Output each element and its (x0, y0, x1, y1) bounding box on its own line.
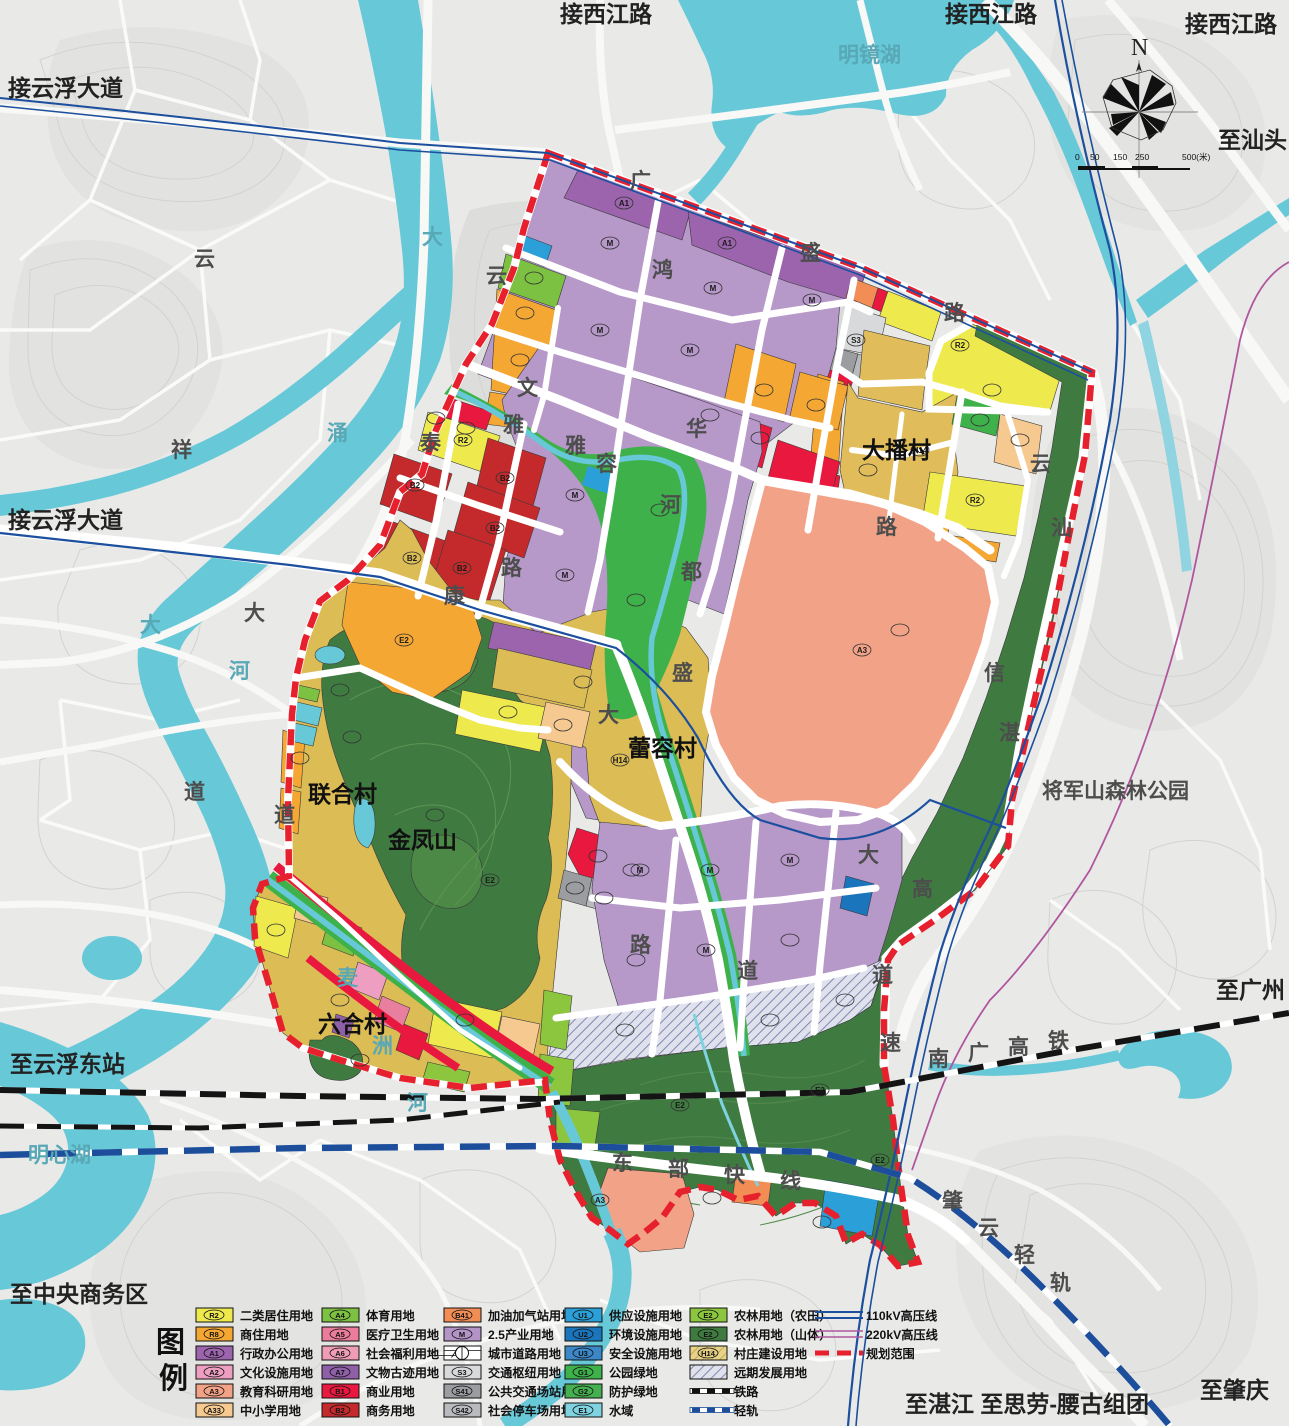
svg-text:南: 南 (928, 1047, 949, 1071)
svg-text:E2: E2 (815, 1086, 825, 1095)
svg-text:路: 路 (630, 933, 652, 957)
svg-text:明镜湖: 明镜湖 (838, 43, 901, 67)
svg-text:至广州: 至广州 (1216, 977, 1285, 1003)
svg-text:供应设施用地: 供应设施用地 (608, 1308, 683, 1323)
svg-text:涌: 涌 (327, 422, 348, 445)
svg-text:盛: 盛 (672, 661, 693, 685)
svg-text:例: 例 (159, 1361, 188, 1395)
svg-text:汕: 汕 (1051, 517, 1072, 540)
svg-text:至汕头: 至汕头 (1218, 127, 1287, 153)
svg-text:E2: E2 (703, 1311, 712, 1320)
svg-text:A6: A6 (335, 1349, 345, 1358)
svg-text:容: 容 (596, 452, 617, 476)
svg-text:B2: B2 (410, 481, 421, 490)
svg-text:大: 大 (858, 844, 879, 867)
svg-text:道: 道 (737, 959, 758, 983)
svg-text:商住用地: 商住用地 (240, 1327, 290, 1342)
svg-text:接云浮大道: 接云浮大道 (8, 507, 123, 533)
svg-text:A3: A3 (209, 1387, 219, 1396)
svg-text:M: M (607, 239, 614, 248)
svg-text:社会停车场用地: 社会停车场用地 (487, 1403, 574, 1418)
svg-text:快: 快 (724, 1164, 746, 1187)
svg-text:E2: E2 (875, 1156, 885, 1165)
svg-text:道: 道 (274, 803, 295, 827)
svg-text:接西江路: 接西江路 (560, 1, 653, 27)
svg-text:B2: B2 (457, 564, 468, 573)
svg-text:广: 广 (630, 169, 651, 193)
svg-text:河: 河 (660, 494, 681, 517)
svg-text:150: 150 (1113, 152, 1127, 162)
svg-text:接西江路: 接西江路 (1185, 11, 1278, 37)
svg-text:蕾容村: 蕾容村 (628, 735, 697, 761)
svg-text:规划范围: 规划范围 (866, 1346, 915, 1361)
svg-text:大: 大 (598, 704, 619, 727)
svg-text:E2: E2 (675, 1101, 685, 1110)
svg-text:图: 图 (156, 1327, 185, 1359)
svg-text:至云浮东站: 至云浮东站 (10, 1051, 125, 1077)
svg-text:鸿: 鸿 (652, 258, 673, 282)
svg-text:M: M (809, 296, 816, 305)
svg-text:接西江路: 接西江路 (945, 1, 1038, 27)
svg-text:50: 50 (1090, 152, 1100, 162)
svg-text:E2: E2 (703, 1330, 712, 1339)
svg-text:广: 广 (968, 1041, 989, 1065)
svg-text:H14: H14 (613, 756, 628, 765)
svg-text:云: 云 (194, 248, 215, 271)
svg-text:路: 路 (501, 556, 523, 580)
svg-text:M: M (710, 284, 717, 293)
svg-text:A1: A1 (722, 239, 733, 248)
svg-text:信: 信 (984, 661, 1005, 685)
svg-text:A1: A1 (209, 1349, 219, 1358)
svg-text:肇: 肇 (942, 1189, 964, 1213)
svg-text:康: 康 (444, 584, 466, 608)
svg-text:路: 路 (876, 515, 898, 539)
svg-text:中小学用地: 中小学用地 (240, 1403, 302, 1418)
svg-text:B2: B2 (407, 554, 418, 563)
svg-text:二类居住用地: 二类居住用地 (240, 1308, 314, 1323)
svg-text:农林用地（农田）: 农林用地（农田） (733, 1308, 832, 1323)
svg-text:铁: 铁 (1048, 1029, 1069, 1053)
svg-text:A5: A5 (335, 1330, 345, 1339)
svg-text:医疗卫生用地: 医疗卫生用地 (366, 1327, 440, 1342)
svg-text:至湛江 至思劳-腰古组团: 至湛江 至思劳-腰古组团 (905, 1391, 1149, 1417)
svg-text:A1: A1 (619, 199, 630, 208)
svg-text:六合村: 六合村 (318, 1011, 387, 1037)
svg-text:文: 文 (517, 376, 539, 400)
svg-text:0: 0 (1075, 152, 1080, 162)
svg-text:云: 云 (486, 265, 507, 288)
svg-text:H14: H14 (701, 1349, 716, 1358)
svg-text:行政办公用地: 行政办公用地 (239, 1346, 314, 1361)
svg-text:E2: E2 (399, 636, 409, 645)
svg-text:大: 大 (140, 614, 161, 637)
svg-text:文物古迹用地: 文物古迹用地 (366, 1365, 440, 1380)
svg-text:N: N (1131, 35, 1148, 61)
svg-text:线: 线 (780, 1169, 801, 1193)
svg-text:A3: A3 (595, 1196, 606, 1205)
svg-text:R2: R2 (209, 1311, 219, 1320)
svg-text:城市道路用地: 城市道路用地 (488, 1346, 562, 1361)
svg-text:U3: U3 (578, 1349, 588, 1358)
svg-text:S41: S41 (455, 1387, 468, 1396)
svg-text:金凤山: 金凤山 (387, 827, 457, 853)
svg-text:华: 华 (686, 417, 707, 441)
svg-text:B2: B2 (500, 474, 511, 483)
svg-text:2.5产业用地: 2.5产业用地 (488, 1327, 555, 1342)
svg-text:泰: 泰 (419, 432, 442, 455)
svg-text:S3: S3 (457, 1368, 466, 1377)
svg-text:麦: 麦 (337, 966, 359, 990)
svg-text:接云浮大道: 接云浮大道 (8, 75, 123, 101)
svg-text:雅: 雅 (503, 413, 524, 437)
svg-text:防护绿地: 防护绿地 (609, 1384, 659, 1399)
svg-text:B41: B41 (455, 1311, 469, 1320)
svg-text:110kV高压线: 110kV高压线 (866, 1308, 938, 1323)
svg-text:500(米): 500(米) (1182, 152, 1211, 162)
svg-text:A4: A4 (335, 1311, 345, 1320)
svg-text:M: M (459, 1330, 465, 1339)
svg-text:至中央商务区: 至中央商务区 (10, 1281, 148, 1307)
svg-text:祥: 祥 (171, 438, 192, 462)
svg-text:教育科研用地: 教育科研用地 (239, 1384, 314, 1399)
svg-text:联合村: 联合村 (308, 781, 377, 807)
svg-text:大: 大 (422, 226, 443, 249)
svg-text:G2: G2 (578, 1387, 588, 1396)
svg-text:M: M (703, 946, 710, 955)
svg-text:道: 道 (872, 963, 893, 987)
svg-text:雅: 雅 (565, 434, 586, 458)
svg-text:S3: S3 (851, 336, 861, 345)
svg-text:至肇庆: 至肇庆 (1200, 1377, 1269, 1403)
svg-text:E1: E1 (578, 1406, 587, 1415)
svg-text:加油加气站用地: 加油加气站用地 (487, 1308, 574, 1323)
svg-text:商务用地: 商务用地 (366, 1403, 416, 1418)
svg-text:R8: R8 (209, 1330, 219, 1339)
svg-text:220kV高压线: 220kV高压线 (866, 1327, 939, 1342)
svg-text:大播村: 大播村 (862, 437, 931, 463)
svg-text:云: 云 (1030, 453, 1051, 476)
svg-text:R2: R2 (970, 496, 981, 505)
svg-text:水域: 水域 (609, 1403, 633, 1418)
svg-text:湛: 湛 (999, 722, 1020, 745)
svg-text:洲: 洲 (372, 1035, 393, 1058)
svg-text:M: M (637, 866, 644, 875)
svg-text:大: 大 (244, 602, 265, 625)
svg-text:B2: B2 (490, 524, 501, 533)
svg-text:A3: A3 (857, 646, 868, 655)
svg-text:农林用地（山体）: 农林用地（山体） (733, 1327, 832, 1342)
svg-text:路: 路 (944, 301, 966, 325)
svg-text:东: 东 (612, 1151, 633, 1175)
svg-text:铁路: 铁路 (734, 1384, 759, 1399)
svg-text:安全设施用地: 安全设施用地 (609, 1346, 683, 1361)
svg-text:速: 速 (880, 1032, 901, 1055)
svg-text:U2: U2 (578, 1330, 588, 1339)
svg-text:文化设施用地: 文化设施用地 (240, 1365, 314, 1380)
svg-text:S42: S42 (455, 1406, 468, 1415)
svg-text:M: M (562, 571, 569, 580)
svg-text:商业用地: 商业用地 (366, 1384, 416, 1399)
svg-text:轻轨: 轻轨 (734, 1403, 759, 1418)
svg-text:体育用地: 体育用地 (366, 1308, 416, 1323)
svg-text:250: 250 (1135, 152, 1149, 162)
svg-text:E2: E2 (485, 876, 495, 885)
svg-text:社会福利用地: 社会福利用地 (365, 1346, 440, 1361)
svg-text:M: M (572, 491, 579, 500)
svg-text:部: 部 (668, 1157, 689, 1181)
svg-text:M: M (707, 866, 714, 875)
svg-text:R2: R2 (955, 341, 966, 350)
svg-text:M: M (687, 346, 694, 355)
svg-text:村庄建设用地: 村庄建设用地 (734, 1346, 808, 1361)
svg-text:A7: A7 (335, 1368, 345, 1377)
svg-text:A2: A2 (209, 1368, 219, 1377)
svg-text:将军山森林公园: 将军山森林公园 (1042, 779, 1189, 803)
svg-text:U1: U1 (578, 1311, 588, 1320)
svg-text:R2: R2 (458, 436, 469, 445)
svg-text:都: 都 (680, 560, 702, 584)
svg-text:M: M (787, 856, 794, 865)
svg-text:高: 高 (1008, 1035, 1029, 1059)
svg-text:M: M (597, 326, 604, 335)
svg-text:高: 高 (912, 877, 933, 901)
svg-text:河: 河 (407, 1092, 428, 1115)
svg-text:环境设施用地: 环境设施用地 (609, 1327, 683, 1342)
svg-text:轻: 轻 (1014, 1243, 1035, 1267)
svg-text:河: 河 (229, 660, 250, 683)
svg-text:公园绿地: 公园绿地 (609, 1365, 659, 1380)
svg-text:云: 云 (978, 1217, 999, 1240)
svg-text:交通枢纽用地: 交通枢纽用地 (488, 1365, 562, 1380)
svg-text:G1: G1 (578, 1368, 588, 1377)
svg-text:明心湖: 明心湖 (28, 1144, 91, 1167)
svg-text:B2: B2 (335, 1406, 345, 1415)
svg-text:道: 道 (184, 780, 205, 804)
svg-text:B1: B1 (335, 1387, 345, 1396)
svg-text:轨: 轨 (1050, 1271, 1071, 1295)
svg-text:盛: 盛 (800, 241, 821, 265)
svg-text:A33: A33 (207, 1406, 221, 1415)
svg-text:远期发展用地: 远期发展用地 (734, 1365, 808, 1380)
